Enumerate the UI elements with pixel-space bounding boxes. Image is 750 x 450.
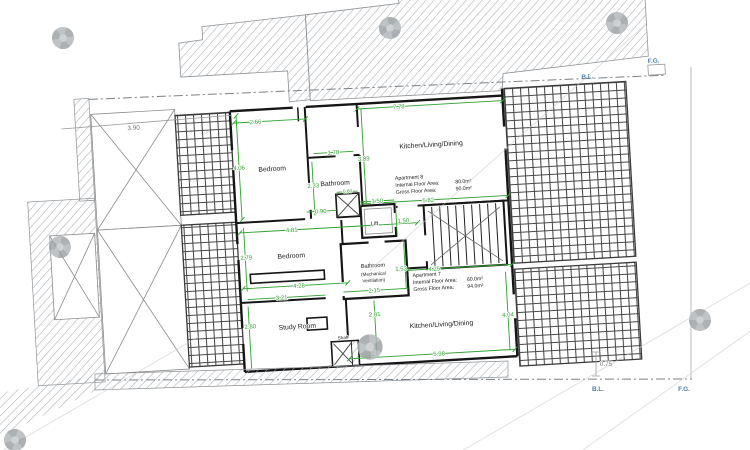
dim-faint-1: 1.06 xyxy=(200,129,211,136)
room-label-bathroom1: Bathroom xyxy=(320,180,350,189)
service-shaft-lower xyxy=(331,340,359,367)
dim-lift-width: 1.50 xyxy=(371,199,384,206)
dim-entry-width: 0.90 xyxy=(315,209,328,216)
room-label-kitchen2: Kitchen/Living/Dining xyxy=(410,320,474,331)
dim-lift-height: 1.50 xyxy=(397,218,410,225)
apartment7-internal-value: 60.0m² xyxy=(467,276,484,283)
terrace-tiles xyxy=(174,81,641,385)
dim-study-width: 3.21 xyxy=(276,295,289,302)
dim-bedroom2-height: 2.79 xyxy=(240,255,253,262)
dim-bathroom2-width: 2.15 xyxy=(368,288,381,295)
floor-plan-drawing: 2.66 7.78 4.06 1.78 2.33 3.89 0.90 4.81 … xyxy=(0,0,750,450)
dim-bedroom1-width: 2.66 xyxy=(250,119,263,126)
dim-bedroom2-width: 4.28 xyxy=(293,283,306,290)
dim-kitchen2-height-right: 4.04 xyxy=(502,312,515,319)
dim-kitchen2-height-left: 2.81 xyxy=(369,312,382,319)
dim-kitchen2-width: 5.98 xyxy=(433,351,446,358)
apartment8-info: Apartment 8 Internal Floor Area: 80.0m² … xyxy=(395,172,472,196)
watermark-icon xyxy=(682,305,716,339)
room-label-shaft: Shaft xyxy=(338,335,350,341)
room-label-bedroom1: Bedroom xyxy=(258,165,286,174)
watermark-icon xyxy=(45,23,77,55)
dim-faint-2: 2.52 xyxy=(189,177,200,184)
fg-marker-box xyxy=(648,64,666,75)
apartment7-gross-label: Gross Floor Area: xyxy=(413,285,454,293)
dim-hall-width: 4.81 xyxy=(286,228,299,235)
floor-plan-canvas: 2.66 7.78 4.06 1.78 2.33 3.89 0.90 4.81 … xyxy=(0,0,750,450)
dim-kitchen1-width: 5.82 xyxy=(422,198,435,205)
room-label-kitchen1: Kitchen/Living/Dining xyxy=(399,140,463,151)
boundary-label-fg-bottom: F.G. xyxy=(678,386,690,393)
apartment7-info: Apartment 7 Internal Floor Area: 60.0m² … xyxy=(412,269,483,293)
boundary-label-fg-top: F.G. xyxy=(648,57,660,65)
dim-kitchen1-height: 3.89 xyxy=(358,156,371,163)
service-shaft-upper xyxy=(336,193,360,217)
dim-bathroom2-height: 1.53 xyxy=(395,266,408,273)
dim-bathroom1-width: 1.78 xyxy=(327,150,340,157)
dim-site-left: 3.90 xyxy=(127,125,140,133)
room-label-bedroom2: Bedroom xyxy=(277,252,305,261)
rotated-plan: 2.66 7.78 4.06 1.78 2.33 3.89 0.90 4.81 … xyxy=(17,0,682,394)
dim-study-height: 2.80 xyxy=(244,324,257,331)
apartment8-gross-label: Gross Floor Area: xyxy=(396,188,437,196)
boundary-label-bl-bottom: B.L. xyxy=(592,386,604,393)
apartment7-gross-value: 94.0m² xyxy=(467,283,484,290)
dim-bedroom1-height: 4.06 xyxy=(233,166,246,173)
dim-shaft1-width: 0.60 xyxy=(343,188,353,195)
dim-bathroom1-height: 2.33 xyxy=(307,183,320,190)
lift-shaft xyxy=(360,204,397,238)
dim-kitchen1-top-width: 7.78 xyxy=(393,104,406,111)
room-label-lift: Lift xyxy=(371,221,379,227)
